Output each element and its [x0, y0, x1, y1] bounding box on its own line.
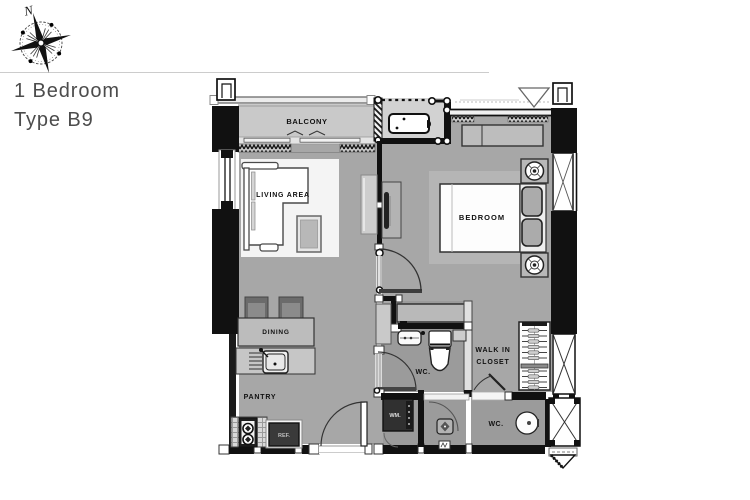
svg-text:PANTRY: PANTRY	[244, 394, 277, 401]
svg-text:WM.: WM.	[389, 413, 401, 419]
svg-text:REF.: REF.	[278, 433, 290, 439]
svg-text:CLOSET: CLOSET	[476, 359, 509, 366]
svg-text:Type B9: Type B9	[14, 109, 94, 131]
svg-text:LIVING AREA: LIVING AREA	[256, 192, 310, 199]
svg-text:WC.: WC.	[488, 421, 503, 428]
svg-text:WC.: WC.	[415, 369, 430, 376]
svg-text:1 Bedroom: 1 Bedroom	[14, 80, 120, 102]
svg-text:BALCONY: BALCONY	[286, 117, 327, 126]
svg-text:WALK IN: WALK IN	[475, 347, 510, 354]
svg-text:DINING: DINING	[262, 329, 290, 336]
svg-text:BEDROOM: BEDROOM	[459, 213, 505, 222]
